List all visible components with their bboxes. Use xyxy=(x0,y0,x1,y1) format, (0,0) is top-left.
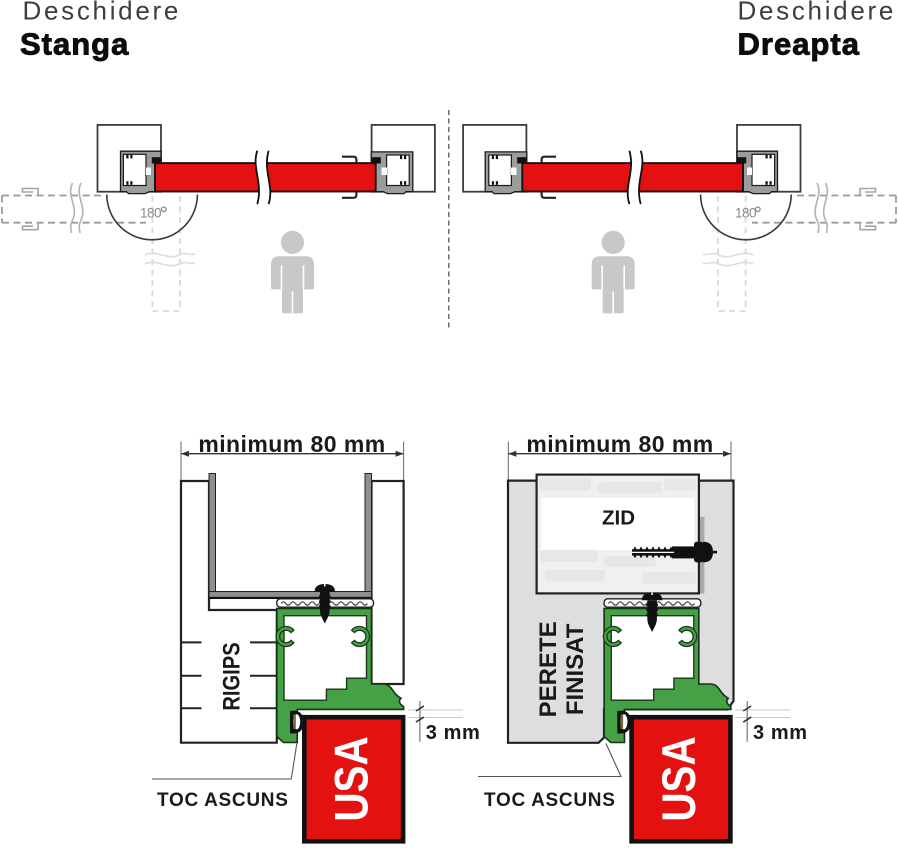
svg-text:FINISAT: FINISAT xyxy=(562,623,589,715)
svg-text:Stanga: Stanga xyxy=(20,27,129,62)
svg-text:3 mm: 3 mm xyxy=(753,722,808,744)
svg-text:USA: USA xyxy=(653,736,706,821)
svg-text:Deschidere: Deschidere xyxy=(23,0,182,26)
svg-text:PERETE: PERETE xyxy=(535,621,562,717)
svg-text:Deschidere: Deschidere xyxy=(738,0,897,26)
svg-text:RIGIPS: RIGIPS xyxy=(218,642,245,710)
svg-text:3 mm: 3 mm xyxy=(426,722,481,744)
svg-text:180: 180 xyxy=(735,206,756,221)
svg-text:180: 180 xyxy=(140,206,161,221)
svg-text:TOC ASCUNS: TOC ASCUNS xyxy=(157,790,289,811)
svg-text:Dreapta: Dreapta xyxy=(738,27,860,62)
svg-text:TOC ASCUNS: TOC ASCUNS xyxy=(484,790,616,811)
svg-text:ZID: ZID xyxy=(602,507,635,530)
svg-text:USA: USA xyxy=(326,736,379,821)
